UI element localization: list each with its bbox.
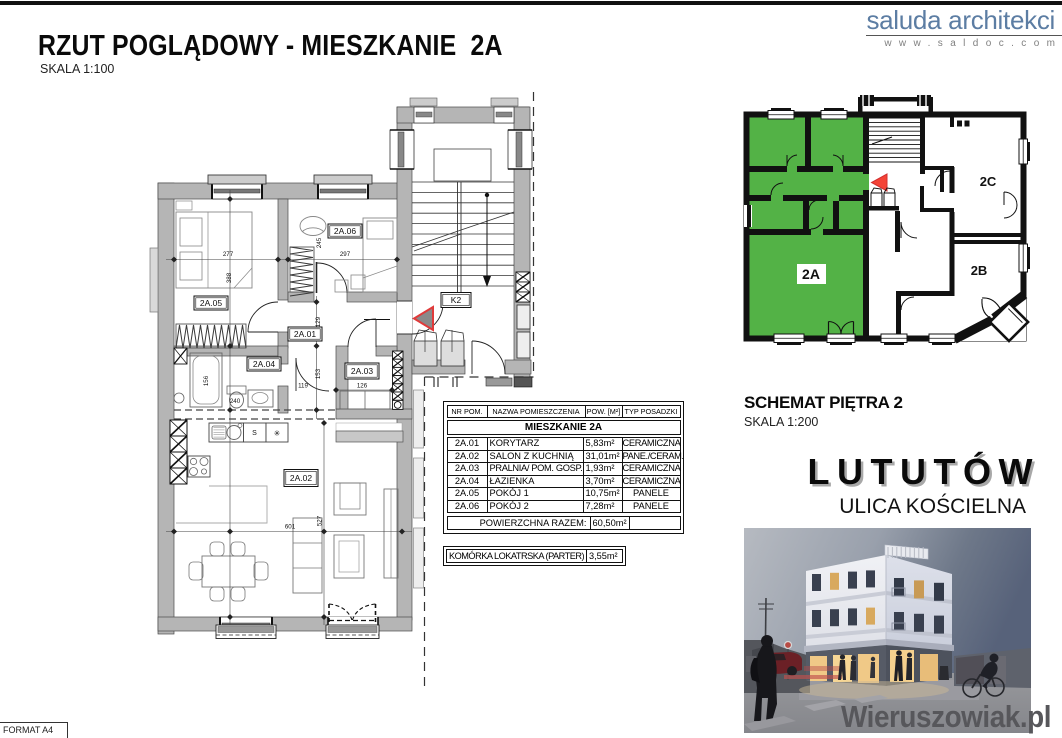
svg-text:2A.03: 2A.03: [351, 366, 373, 376]
svg-text:2A: 2A: [802, 266, 820, 282]
svg-text:297: 297: [340, 251, 351, 258]
svg-text:2A.01: 2A.01: [294, 329, 316, 339]
svg-text:2A.06: 2A.06: [334, 226, 356, 236]
svg-text:245: 245: [316, 237, 323, 248]
svg-text:129: 129: [315, 316, 322, 327]
svg-text:277: 277: [223, 251, 234, 258]
svg-text:388: 388: [226, 272, 233, 283]
svg-text:2A.02: 2A.02: [290, 473, 312, 483]
svg-text:153: 153: [315, 368, 322, 379]
svg-text:✳: ✳: [274, 429, 281, 438]
svg-text:2B: 2B: [971, 263, 988, 278]
svg-text:K2: K2: [451, 295, 462, 305]
svg-text:601: 601: [285, 524, 296, 531]
svg-text:2C: 2C: [980, 174, 997, 189]
svg-text:2A.04: 2A.04: [253, 359, 275, 369]
svg-text:2A.05: 2A.05: [200, 298, 222, 308]
svg-text:240: 240: [230, 398, 241, 405]
svg-text:527: 527: [317, 515, 324, 526]
svg-text:126: 126: [357, 383, 368, 390]
svg-text:S: S: [252, 430, 257, 437]
svg-text:156: 156: [203, 375, 210, 386]
svg-text:119: 119: [298, 383, 308, 390]
